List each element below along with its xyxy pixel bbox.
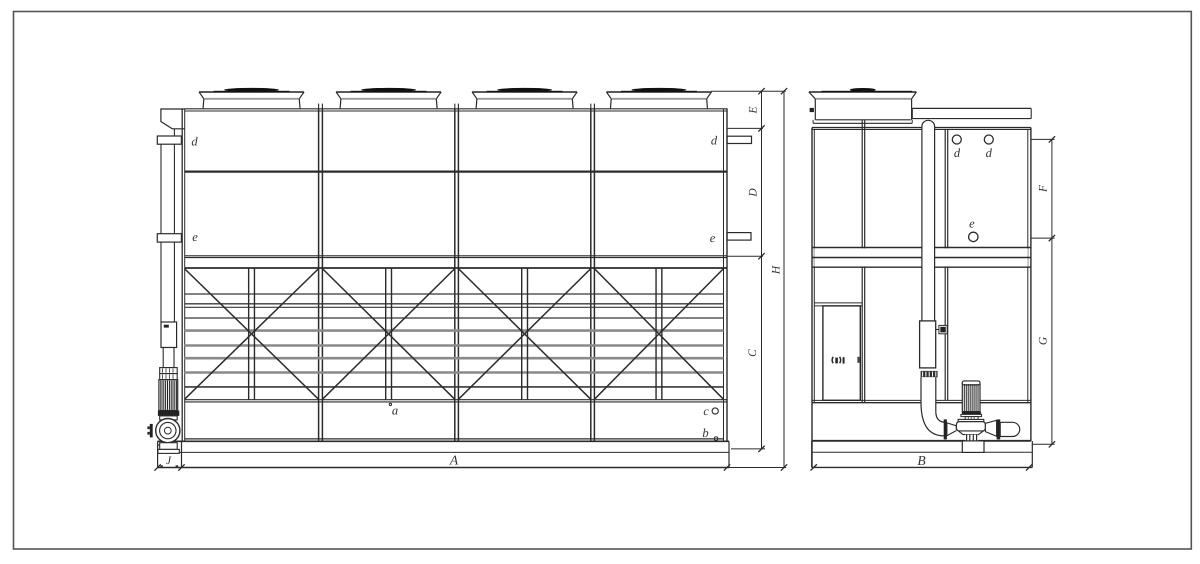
svg-text:A: A	[449, 453, 459, 468]
svg-text:d: d	[191, 135, 198, 149]
svg-text:b: b	[702, 426, 708, 440]
svg-text:G: G	[1038, 336, 1050, 345]
svg-text:a: a	[392, 404, 398, 418]
svg-text:e: e	[710, 231, 716, 245]
svg-text:D: D	[748, 188, 760, 198]
svg-text:B: B	[917, 453, 925, 468]
svg-text:c: c	[703, 404, 709, 418]
svg-text:e: e	[192, 230, 198, 244]
svg-text:F: F	[1038, 184, 1050, 193]
svg-text:C: C	[747, 349, 759, 357]
svg-text:d: d	[986, 146, 993, 160]
svg-text:H: H	[771, 265, 783, 275]
svg-text:d: d	[711, 134, 718, 148]
svg-text:e: e	[969, 217, 975, 231]
svg-text:d: d	[954, 146, 961, 160]
svg-text:E: E	[748, 106, 760, 114]
svg-text:J: J	[166, 455, 172, 467]
